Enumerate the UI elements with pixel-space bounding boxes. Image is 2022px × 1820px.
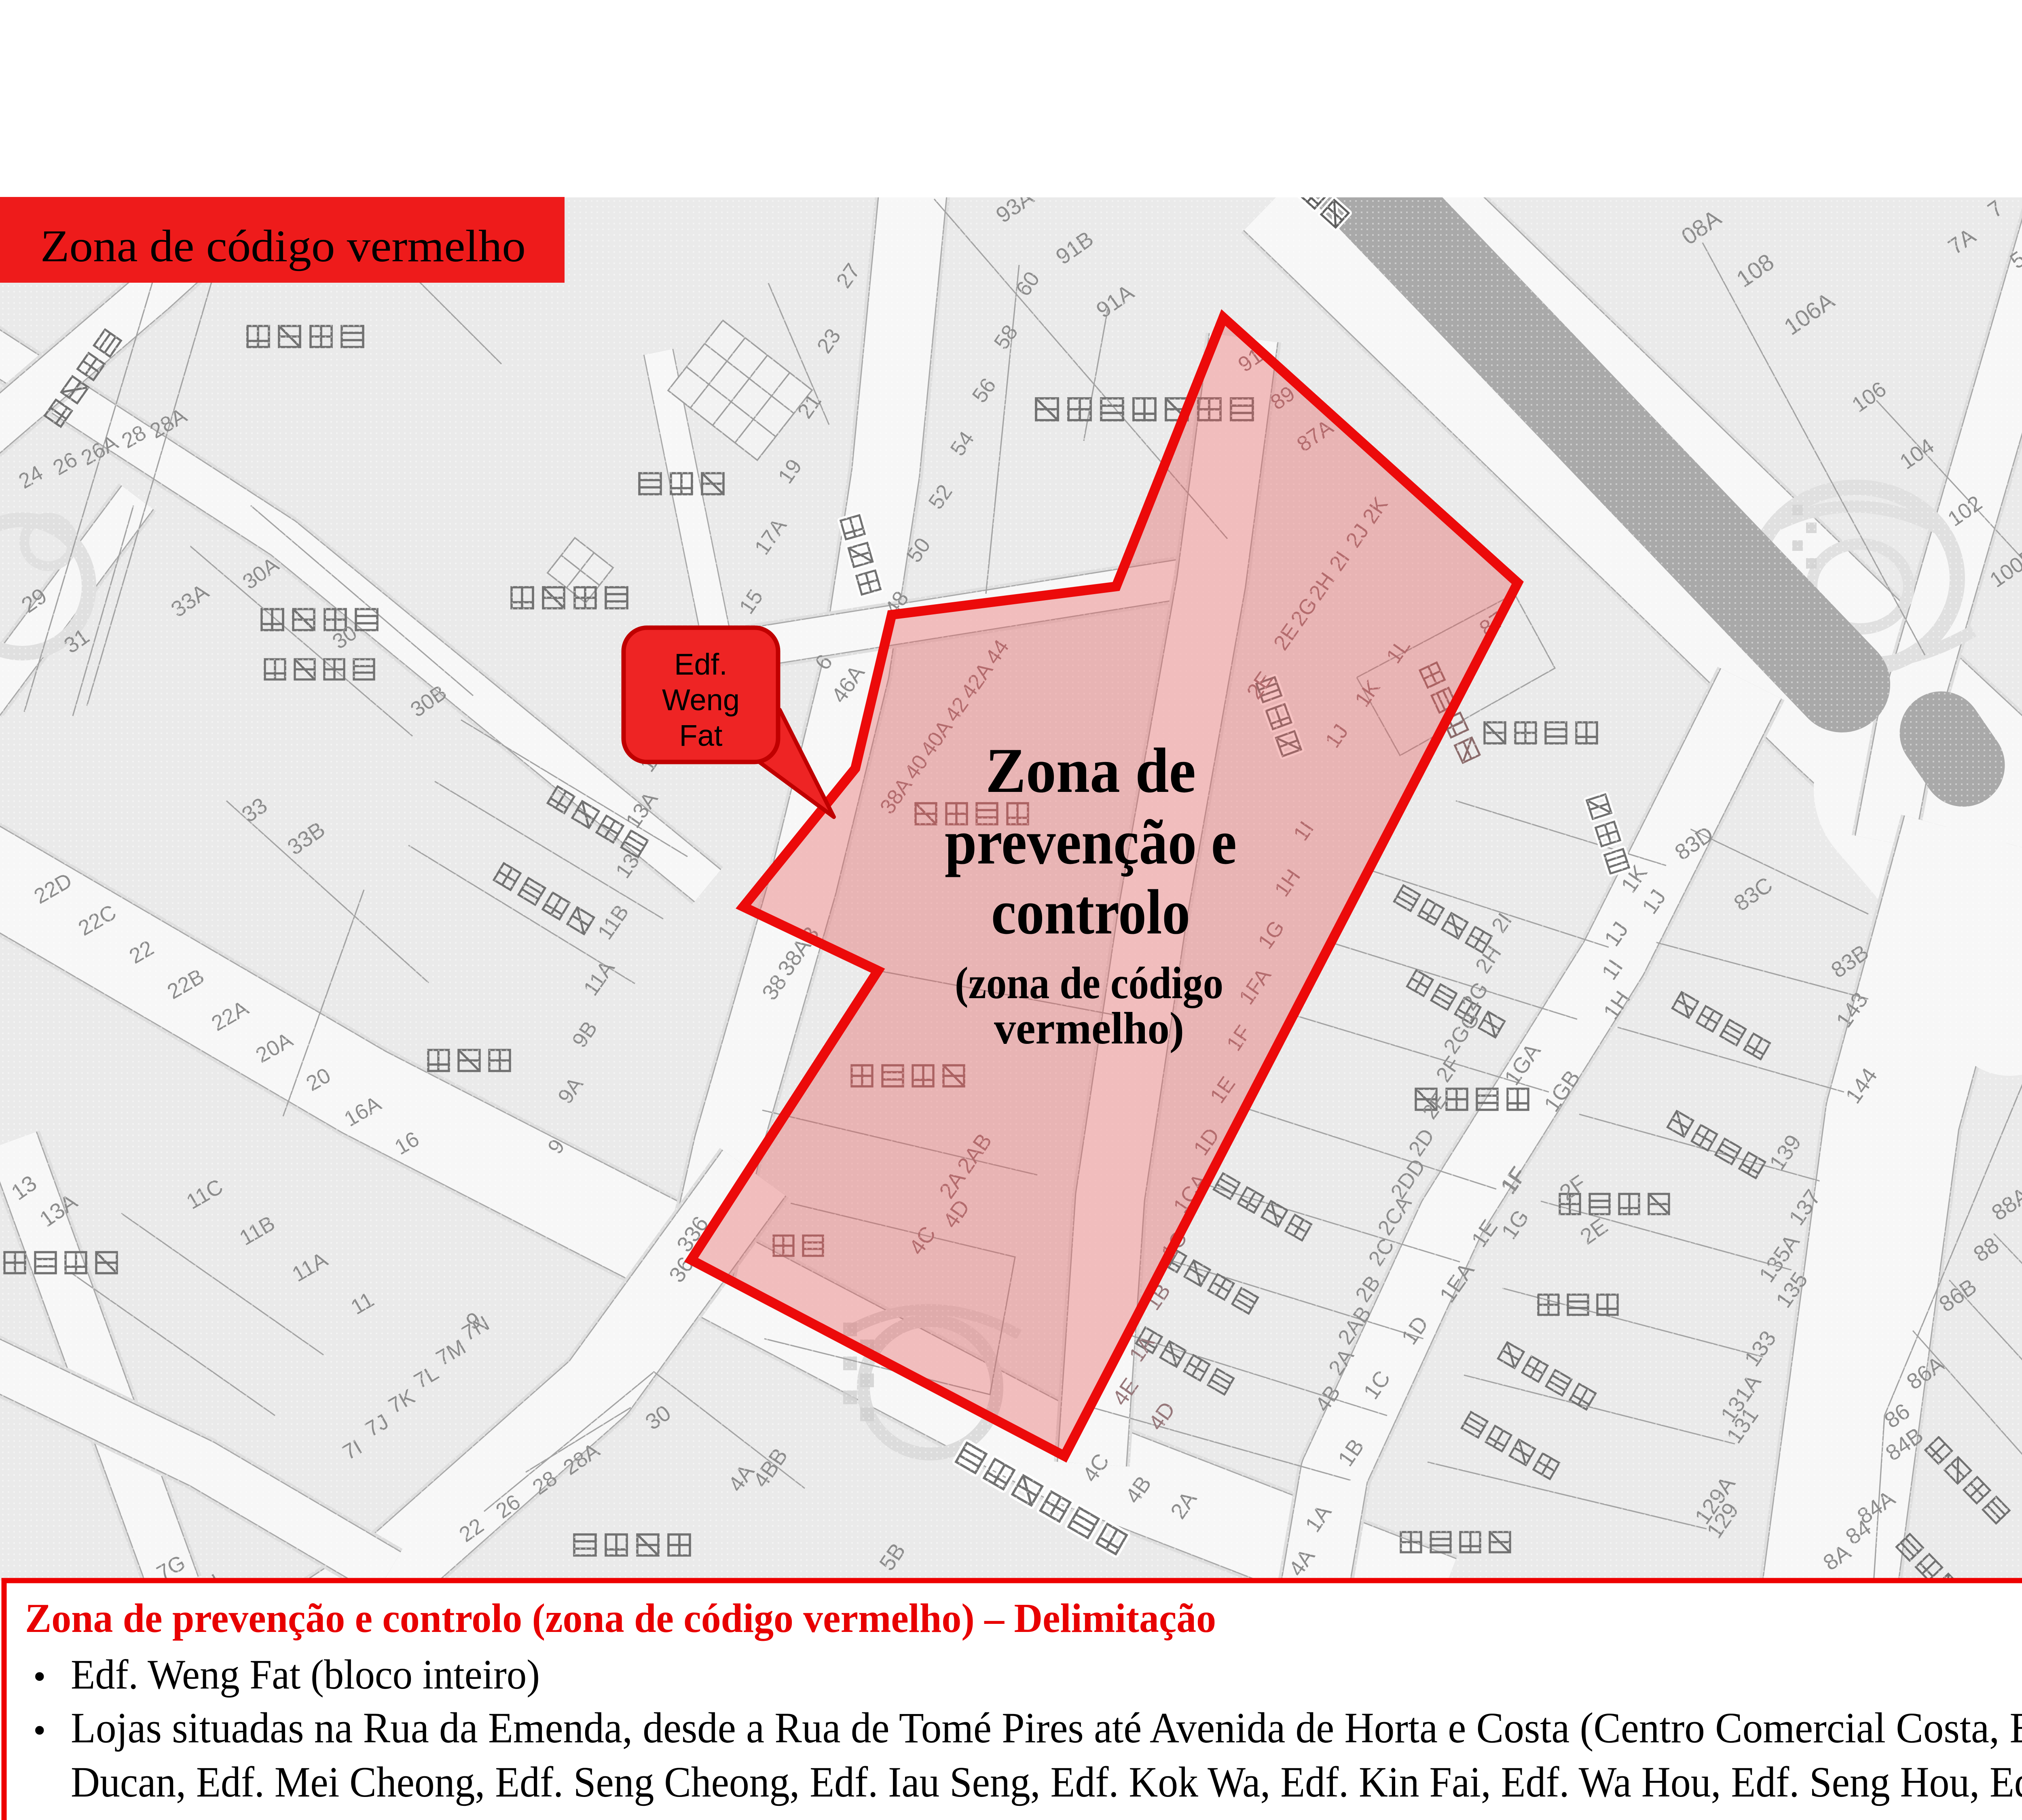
svg-text:controlo: controlo	[991, 877, 1190, 948]
svg-text:Weng: Weng	[662, 683, 740, 717]
svg-text:(zona de código: (zona de código	[955, 958, 1223, 1008]
svg-text:Ducan, Edf. Mei Cheong, Edf. S: Ducan, Edf. Mei Cheong, Edf. Seng Cheong…	[71, 1759, 2022, 1806]
svg-text:Zona de prevenção e controlo (: Zona de prevenção e controlo (zona de có…	[25, 1596, 1216, 1641]
svg-text:Edf.: Edf.	[674, 648, 728, 681]
svg-text:Fat: Fat	[679, 719, 723, 752]
svg-text:•: •	[33, 1657, 46, 1697]
svg-text:Zona de código vermelho: Zona de código vermelho	[40, 221, 526, 271]
svg-text:•: •	[33, 1710, 46, 1750]
svg-text:prevenção e: prevenção e	[945, 807, 1237, 878]
svg-text:Lojas situadas na Rua da Emend: Lojas situadas na Rua da Emenda, desde a…	[71, 1704, 2022, 1752]
svg-text:Zona de: Zona de	[986, 735, 1196, 806]
svg-text:vermelho): vermelho)	[994, 1003, 1184, 1054]
svg-text:Edf. Weng Fat (bloco inteiro): Edf. Weng Fat (bloco inteiro)	[71, 1651, 540, 1698]
